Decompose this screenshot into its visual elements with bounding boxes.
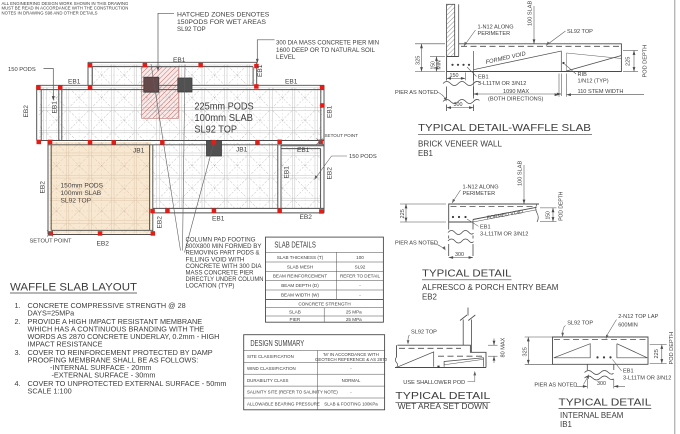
svg-text:2.: 2. bbox=[15, 317, 21, 326]
svg-text:100 SLAB: 100 SLAB bbox=[518, 161, 524, 186]
svg-text:SL92 TOP: SL92 TOP bbox=[411, 330, 437, 336]
svg-text:1.: 1. bbox=[15, 301, 21, 310]
svg-text:SLAB THICKNESS (T): SLAB THICKNESS (T) bbox=[277, 255, 324, 260]
svg-text:ALLOWABLE BEARING PRESSURE: ALLOWABLE BEARING PRESSURE bbox=[247, 402, 320, 407]
svg-text:USE SHALLOWER POD: USE SHALLOWER POD bbox=[403, 380, 465, 386]
svg-text:EB1: EB1 bbox=[418, 149, 433, 158]
svg-text:MIN: MIN bbox=[437, 60, 443, 70]
svg-text:80 MAX: 80 MAX bbox=[501, 337, 507, 357]
svg-text:EB1: EB1 bbox=[297, 147, 310, 154]
svg-text:DESIGN SUMMARY: DESIGN SUMMARY bbox=[250, 339, 304, 348]
svg-text:800X800 MIN FORMED BY: 800X800 MIN FORMED BY bbox=[186, 244, 262, 250]
svg-text:GEOTECH REFERENCE & AS 2870: GEOTECH REFERENCE & AS 2870 bbox=[315, 357, 388, 362]
svg-text:150PODS FOR WET AREAS: 150PODS FOR WET AREAS bbox=[177, 19, 266, 26]
svg-text:NORMAL: NORMAL bbox=[342, 378, 361, 383]
svg-text:DIRECTLY UNDER COLUMN: DIRECTLY UNDER COLUMN bbox=[186, 277, 264, 283]
svg-text:EB1: EB1 bbox=[623, 369, 634, 375]
svg-text:EB1: EB1 bbox=[327, 105, 334, 118]
svg-text:PIER: PIER bbox=[290, 317, 301, 322]
svg-text:PIER AS NOTED: PIER AS NOTED bbox=[395, 90, 438, 96]
svg-text:100 SLAB: 100 SLAB bbox=[528, 1, 534, 26]
svg-text:EB1: EB1 bbox=[478, 75, 489, 81]
svg-text:SITE CLASSIFICATION: SITE CLASSIFICATION bbox=[247, 354, 294, 359]
svg-text:(BOTH DIRECTIONS): (BOTH DIRECTIONS) bbox=[488, 97, 543, 103]
svg-text:LOCATION (TYP): LOCATION (TYP) bbox=[186, 284, 235, 290]
svg-text:EB2: EB2 bbox=[422, 293, 437, 302]
svg-text:300: 300 bbox=[597, 381, 606, 387]
svg-text:TYPICAL DETAIL: TYPICAL DETAIL bbox=[422, 269, 512, 280]
svg-text:3-L11TM OR 3/N12: 3-L11TM OR 3/N12 bbox=[480, 231, 528, 237]
svg-text:BEAM WIDTH (W): BEAM WIDTH (W) bbox=[281, 292, 319, 297]
svg-text:LEVEL: LEVEL bbox=[276, 54, 296, 61]
svg-text:COLUMN PAD FOOTING: COLUMN PAD FOOTING bbox=[186, 238, 256, 244]
svg-text:PERIMETER: PERIMETER bbox=[478, 31, 511, 37]
svg-text:EB2: EB2 bbox=[23, 105, 30, 118]
svg-text:REFER TO DETAIL: REFER TO DETAIL bbox=[340, 274, 381, 279]
svg-text:25 MPa: 25 MPa bbox=[346, 317, 362, 322]
svg-text:EB1: EB1 bbox=[480, 224, 491, 230]
svg-text:SL92 TOP: SL92 TOP bbox=[177, 26, 206, 33]
svg-text:TYPICAL DETAIL: TYPICAL DETAIL bbox=[395, 391, 490, 402]
svg-text:SL92 TOP: SL92 TOP bbox=[567, 320, 593, 326]
svg-text:EB2: EB2 bbox=[327, 167, 334, 180]
svg-text:TYPICAL DETAIL-WAFFLE SLAB: TYPICAL DETAIL-WAFFLE SLAB bbox=[418, 123, 591, 134]
svg-text:JB1: JB1 bbox=[236, 147, 248, 154]
svg-text:WAFFLE SLAB LAYOUT: WAFFLE SLAB LAYOUT bbox=[10, 282, 137, 294]
svg-text:NOTES IN DRAWING S98 AND OTHER: NOTES IN DRAWING S98 AND OTHER DETAILS bbox=[2, 10, 98, 15]
svg-text:EB2: EB2 bbox=[40, 181, 47, 194]
svg-text:225: 225 bbox=[626, 57, 632, 66]
svg-text:300 DIA MASS CONCRETE PIER MIN: 300 DIA MASS CONCRETE PIER MIN bbox=[276, 40, 379, 47]
svg-text:PIER AS NOTED: PIER AS NOTED bbox=[395, 240, 438, 246]
svg-text:POD DEPTH: POD DEPTH bbox=[669, 332, 675, 365]
svg-text:225: 225 bbox=[400, 209, 406, 218]
svg-text:EB1: EB1 bbox=[68, 79, 81, 86]
svg-text:EB2: EB2 bbox=[97, 241, 110, 248]
svg-text:ALFRESCO & PORCH ENTRY BEAM: ALFRESCO & PORCH ENTRY BEAM bbox=[422, 283, 558, 292]
svg-text:EB1: EB1 bbox=[257, 64, 264, 77]
svg-text:1-N12 ALONG: 1-N12 ALONG bbox=[478, 25, 514, 31]
svg-text:CONCRETE STRENGTH: CONCRETE STRENGTH bbox=[298, 301, 350, 306]
svg-text:POD DEPTH: POD DEPTH bbox=[559, 191, 565, 221]
svg-text:BEAM REINFORCEMENT: BEAM REINFORCEMENT bbox=[273, 274, 328, 279]
svg-text:TYPICAL DETAIL: TYPICAL DETAIL bbox=[559, 397, 652, 408]
svg-text:SL92: SL92 bbox=[355, 264, 366, 269]
svg-text:100: 100 bbox=[356, 255, 364, 260]
svg-text:EB2: EB2 bbox=[300, 214, 313, 221]
svg-text:325: 325 bbox=[416, 56, 422, 65]
svg-text:FORMED VOID: FORMED VOID bbox=[486, 209, 523, 221]
svg-text:POD DEPTH: POD DEPTH bbox=[643, 45, 649, 78]
svg-text:3-L11TM OR 3/N12: 3-L11TM OR 3/N12 bbox=[478, 81, 526, 87]
svg-text:1-N12 ALONG: 1-N12 ALONG bbox=[463, 185, 499, 191]
svg-text:FILLING VOID WITH: FILLING VOID WITH bbox=[186, 257, 245, 263]
svg-text:SLAB MESH: SLAB MESH bbox=[287, 264, 313, 269]
svg-text:EB1: EB1 bbox=[212, 216, 225, 223]
svg-text:600MIN: 600MIN bbox=[618, 323, 638, 329]
svg-text:110 STEM WIDTH: 110 STEM WIDTH bbox=[578, 89, 624, 95]
svg-text:SLAB DETAILS: SLAB DETAILS bbox=[274, 241, 316, 250]
svg-text:HATCHED ZONES DENOTES: HATCHED ZONES DENOTES bbox=[177, 12, 269, 19]
svg-text:SETOUT POINT: SETOUT POINT bbox=[325, 133, 359, 138]
svg-text:1090 MAX: 1090 MAX bbox=[503, 89, 529, 95]
svg-text:EB1: EB1 bbox=[173, 57, 186, 64]
svg-text:EB1: EB1 bbox=[285, 79, 298, 86]
svg-text:300: 300 bbox=[454, 102, 463, 108]
svg-text:INTERNAL BEAM: INTERNAL BEAM bbox=[560, 411, 623, 420]
svg-text:MASS CONCRETE PIER: MASS CONCRETE PIER bbox=[186, 271, 255, 277]
svg-text:RIB: RIB bbox=[578, 72, 588, 78]
svg-text:PERIMETER: PERIMETER bbox=[463, 191, 496, 197]
svg-text:SLAB & FOOTING 100KPa: SLAB & FOOTING 100KPa bbox=[324, 402, 378, 407]
svg-text:1600 DEEP OR TO NATURAL SOIL: 1600 DEEP OR TO NATURAL SOIL bbox=[276, 47, 376, 54]
svg-text:WIND CLASSIFICATION: WIND CLASSIFICATION bbox=[247, 366, 296, 371]
svg-text:WET AREA SET DOWN: WET AREA SET DOWN bbox=[398, 402, 489, 411]
svg-text:25 MPa: 25 MPa bbox=[346, 310, 362, 315]
svg-text:CONCRETE WITH 300 DIA: CONCRETE WITH 300 DIA bbox=[186, 264, 262, 270]
svg-text:150 PODS: 150 PODS bbox=[349, 154, 377, 160]
svg-text:DURABILITY CLASS: DURABILITY CLASS bbox=[247, 378, 288, 383]
svg-text:2-N12 TOP LAP: 2-N12 TOP LAP bbox=[618, 314, 658, 320]
svg-text:REMOVING PART PODS &: REMOVING PART PODS & bbox=[186, 251, 260, 257]
svg-text:SL92 TOP: SL92 TOP bbox=[567, 29, 593, 35]
svg-text:SCALE 1:100: SCALE 1:100 bbox=[28, 386, 72, 395]
svg-text:1/N12 (TYP): 1/N12 (TYP) bbox=[578, 79, 609, 85]
svg-text:150: 150 bbox=[546, 211, 552, 220]
svg-text:EB2: EB2 bbox=[157, 216, 164, 229]
svg-text:SETOUT POINT: SETOUT POINT bbox=[30, 239, 72, 245]
svg-text:225mm PODS: 225mm PODS bbox=[194, 102, 254, 113]
svg-text:JB1: JB1 bbox=[133, 148, 145, 155]
svg-text:SALINITY SITE (REFER TO SALINI: SALINITY SITE (REFER TO SALINITY NOTE) bbox=[247, 390, 338, 395]
svg-text:BRICK VENEER WALL: BRICK VENEER WALL bbox=[418, 139, 503, 148]
svg-text:SL92 TOP: SL92 TOP bbox=[194, 125, 237, 136]
svg-text:225: 225 bbox=[654, 349, 660, 358]
svg-text:4.: 4. bbox=[15, 379, 21, 388]
svg-text:3-L11TM OR 3/N12: 3-L11TM OR 3/N12 bbox=[623, 375, 671, 381]
svg-text:EB1: EB1 bbox=[284, 166, 291, 179]
svg-text:SLAB: SLAB bbox=[289, 310, 301, 315]
svg-text:BEAM DEPTH (D): BEAM DEPTH (D) bbox=[281, 283, 319, 288]
svg-text:3.: 3. bbox=[15, 348, 21, 357]
svg-text:325: 325 bbox=[522, 347, 528, 356]
svg-text:FORMED VOID: FORMED VOID bbox=[485, 51, 526, 66]
svg-text:PIER AS NOTED: PIER AS NOTED bbox=[534, 383, 577, 389]
svg-text:150 PODS: 150 PODS bbox=[8, 67, 36, 73]
svg-text:EB1: EB1 bbox=[51, 101, 58, 114]
svg-text:IB1: IB1 bbox=[560, 420, 572, 429]
svg-text:100mm SLAB: 100mm SLAB bbox=[194, 113, 253, 124]
svg-text:300: 300 bbox=[455, 252, 464, 258]
